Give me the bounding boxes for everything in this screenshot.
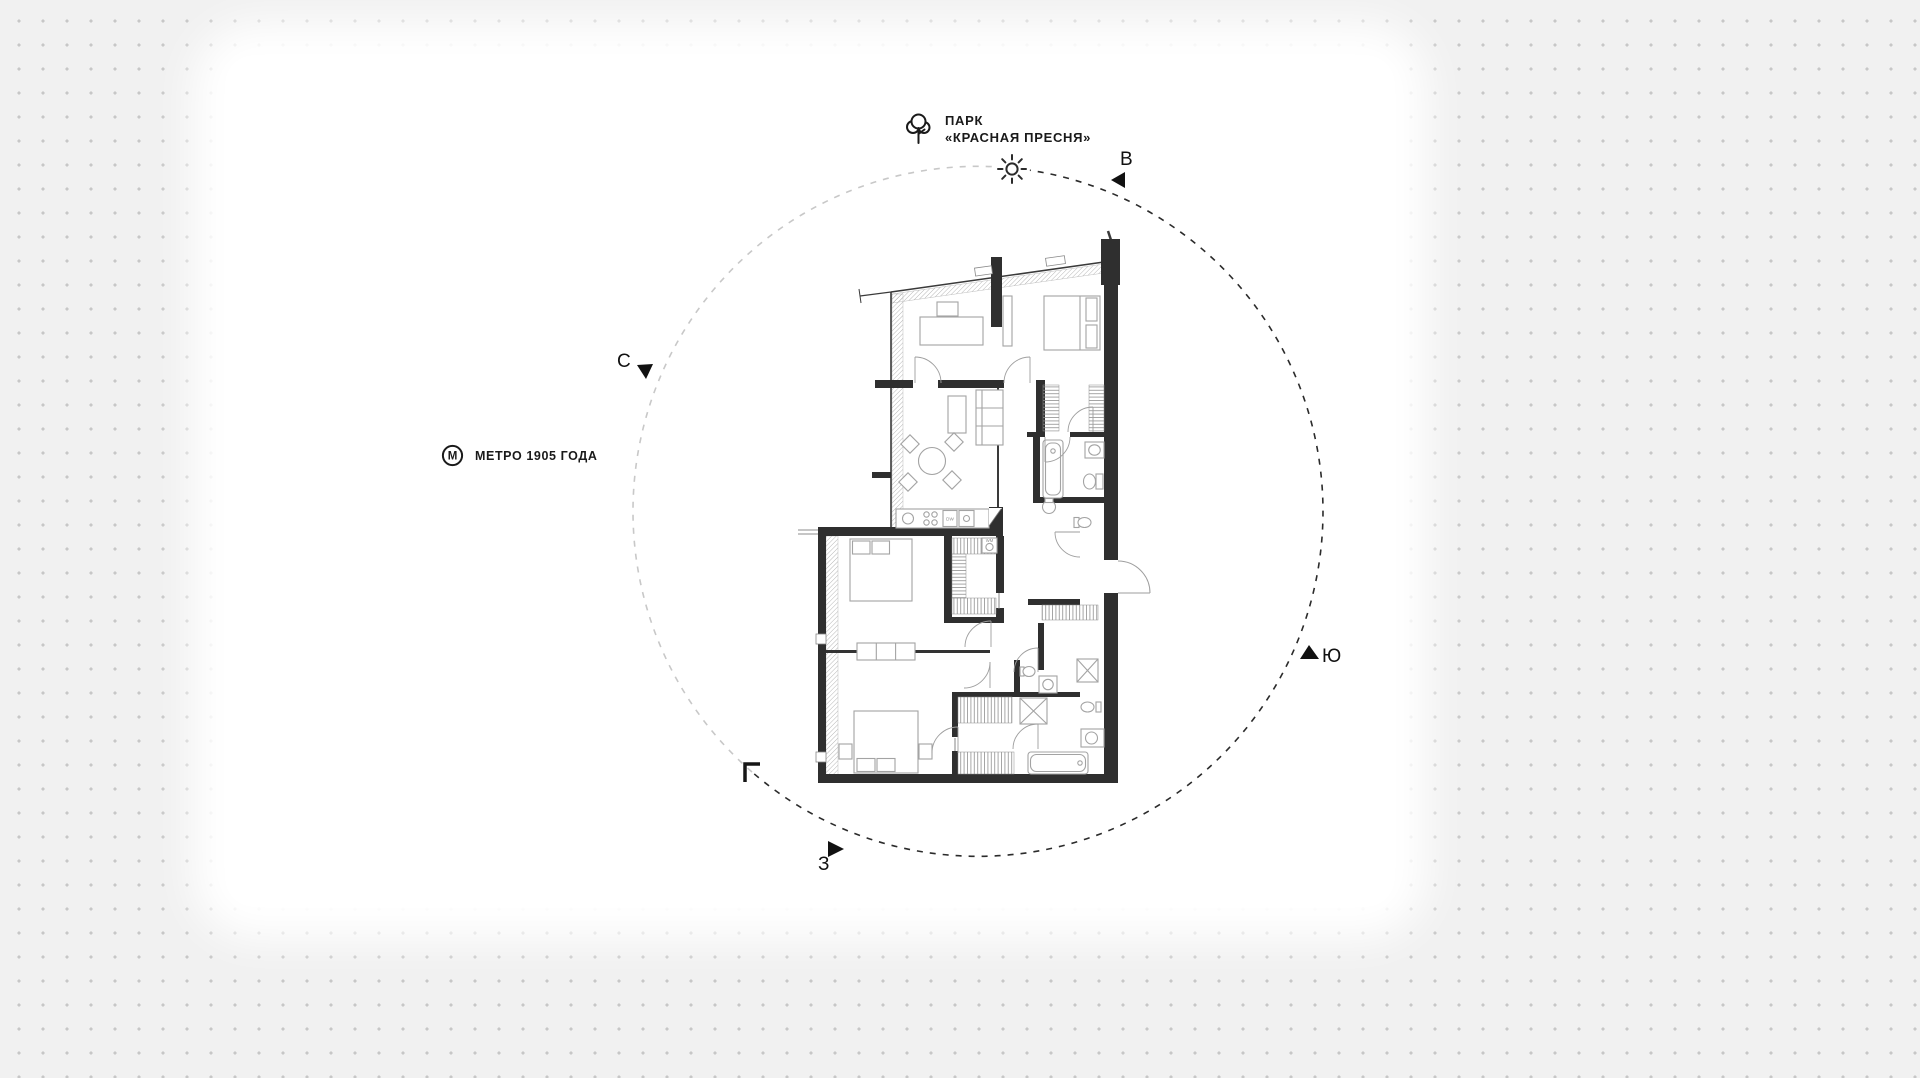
park-label-text: ПАРК «КРАСНАЯ ПРЕСНЯ» (945, 110, 1091, 146)
floor-plan: DW WM (780, 230, 1160, 800)
park-label-line1: ПАРК (945, 112, 1091, 129)
metro-landmark: М МЕТРО 1905 ГОДА (441, 444, 597, 467)
east-arrow-icon (1111, 172, 1125, 188)
sun-icon (994, 151, 1030, 187)
north-arrow-icon (637, 364, 653, 379)
metro-icon: М (441, 444, 464, 467)
corner-bracket-mark (745, 764, 760, 782)
west-arrow-icon (828, 841, 844, 857)
park-landmark: ПАРК «КРАСНАЯ ПРЕСНЯ» (903, 110, 1091, 148)
metro-label-text: МЕТРО 1905 ГОДА (475, 449, 597, 463)
page: С В Ю З ПАРК «КРАСНАЯ ПРЕСНЯ» М МЕТРО 19… (0, 0, 1920, 1078)
dishwasher-label: DW (946, 517, 954, 522)
entry-door (1118, 561, 1150, 593)
park-label-line2: «КРАСНАЯ ПРЕСНЯ» (945, 129, 1091, 146)
south-arrow-icon (1300, 645, 1319, 659)
tree-icon (903, 110, 935, 148)
compass-east-label: В (1120, 150, 1133, 169)
washer-label: WM (986, 538, 994, 543)
compass-north-label: С (617, 352, 631, 371)
metro-icon-letter: М (448, 451, 458, 463)
compass-south-label: Ю (1322, 647, 1342, 666)
compass-west-label: З (818, 855, 830, 874)
